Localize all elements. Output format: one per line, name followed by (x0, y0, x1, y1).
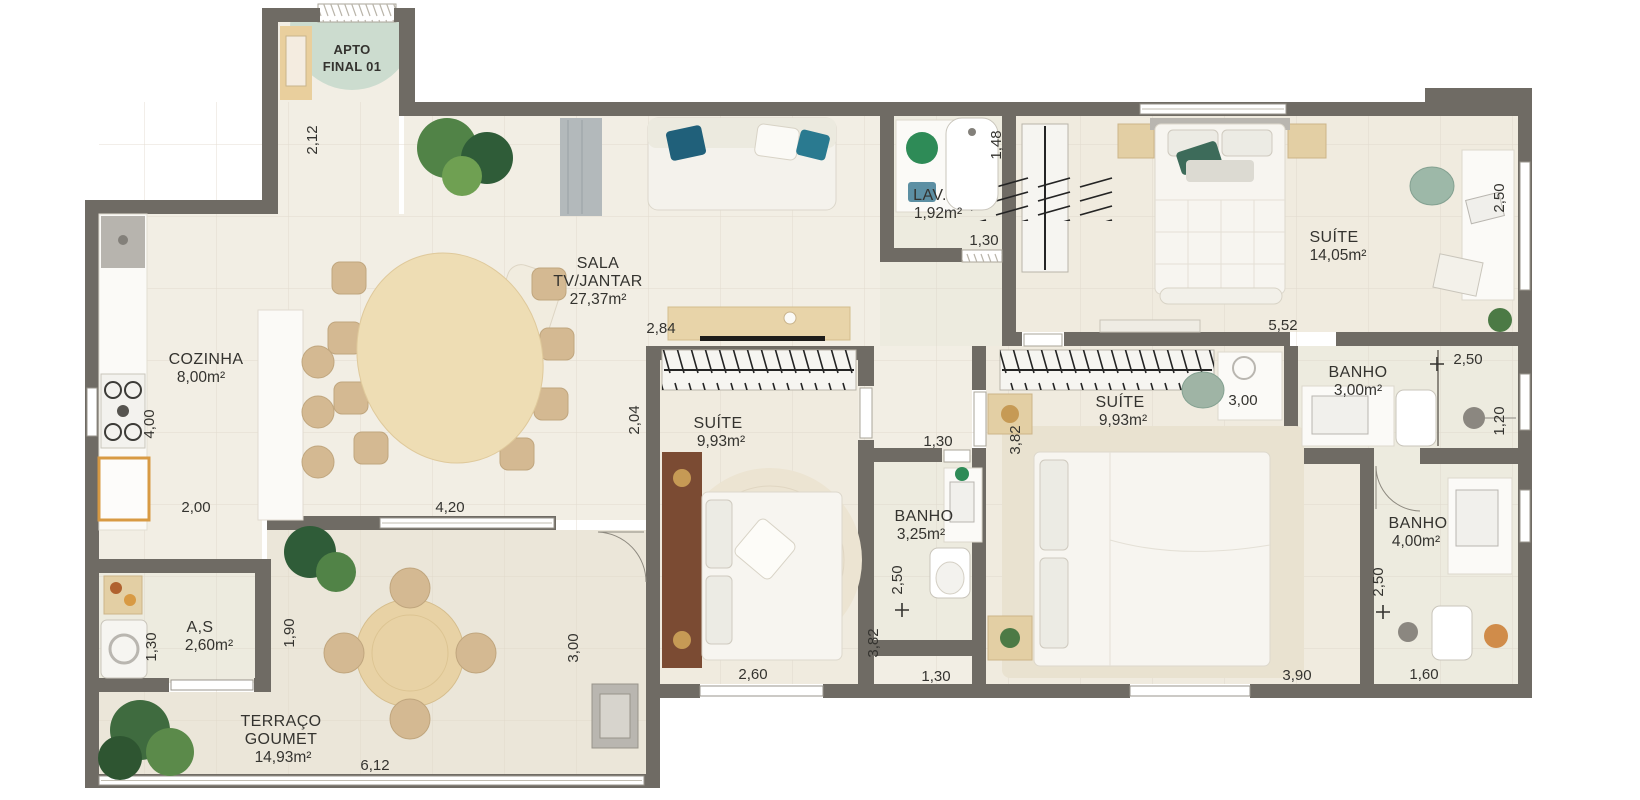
window-suite-master-right (1520, 162, 1530, 290)
suite2-lamp-top (673, 469, 691, 487)
sofa (648, 118, 836, 210)
b3-basin (1456, 490, 1498, 546)
suite3-chair (1182, 372, 1224, 408)
wall-lav-bottom (880, 248, 962, 262)
suite2-pillow-2 (706, 576, 732, 644)
window-as (171, 680, 253, 690)
stool-1 (302, 346, 334, 378)
wall-entry-right (399, 8, 415, 116)
label-as-area: 2,60m² (185, 637, 233, 654)
dim-banho-master-depth: 1,20 (1491, 406, 1508, 435)
suite3-pillow-2 (1040, 558, 1068, 648)
wall-left-outer (85, 200, 99, 788)
master-nightstand-left (1118, 124, 1154, 158)
dim-banho-corredor-bottom: 1,30 (921, 668, 950, 685)
washer (101, 620, 147, 678)
suite3-lamp (1001, 405, 1019, 423)
wall-suite-master-bottom (1064, 332, 1290, 346)
wall-suite2-right-upper (858, 346, 874, 386)
stool-2 (302, 396, 334, 428)
entry-mirror (286, 36, 306, 86)
dim-entry-depth: 2,12 (304, 125, 321, 154)
dim-sala-width: 4,20 (435, 499, 464, 516)
sofa-pillow-white (754, 123, 800, 161)
label-sala-area: 27,37m² (570, 291, 627, 308)
label-cozinha-area: 8,00m² (177, 369, 225, 386)
dim-banho-corredor-depth: 2,50 (889, 565, 906, 594)
bm-toilet (1396, 390, 1436, 446)
dim-suite3-depth: 3,82 (1007, 425, 1024, 454)
label-terraco-2: GOUMET (245, 731, 318, 748)
sideboard-body (668, 307, 850, 340)
label-suite2-area: 9,93m² (697, 433, 745, 450)
master-pillow-band (1186, 160, 1254, 182)
b3-drain (1398, 622, 1418, 642)
wall-entry-left (262, 8, 278, 214)
dim-banho-master-width: 2,50 (1453, 351, 1482, 368)
label-banho-master-area: 3,00m² (1334, 382, 1382, 399)
sala-plant-leaf3 (442, 156, 482, 196)
dim-lav-depth: 1,48 (988, 130, 1005, 159)
bc-basin (950, 482, 974, 522)
master-plant (1488, 308, 1512, 332)
tv-sideboard (668, 307, 850, 341)
label-cozinha: COZINHA (169, 351, 244, 368)
label-banho-corredor: BANHO (895, 508, 954, 525)
suite3-door-mat (974, 392, 986, 446)
terraco-chair-w (324, 633, 364, 673)
window-banho-master (1520, 374, 1530, 430)
suite3-desk (1218, 352, 1282, 420)
badge-line1: APTO (333, 42, 370, 57)
suite2-pillow-1 (706, 500, 732, 568)
wall-bottom-a (646, 684, 700, 698)
dining-chair-6 (540, 328, 574, 360)
as-fixtures (101, 576, 147, 678)
bc-plant (955, 467, 969, 481)
dim-suite3-desk: 3,00 (1228, 392, 1257, 409)
dining-chair-1 (332, 262, 366, 294)
label-suite3: SUÍTE (1095, 392, 1144, 411)
wall-suite3-left-upper (972, 346, 986, 390)
as-deco-2 (124, 594, 136, 606)
label-banho-suite3: BANHO (1389, 515, 1448, 532)
label-as: A,S (187, 619, 214, 636)
oven (99, 458, 149, 520)
terraco-grill-top (600, 694, 630, 738)
floorplan-page: APTO FINAL 01 (0, 0, 1640, 800)
as-shelf (104, 576, 142, 614)
door-plant-leaf2 (316, 552, 356, 592)
dining-chair-4 (354, 432, 388, 464)
dim-suite2-side: 3,82 (865, 628, 882, 657)
wall-terraco-right (646, 346, 660, 788)
wall-top-right-notch (1425, 88, 1532, 102)
suite3-bed (1034, 452, 1270, 666)
wall-as-bottom-left (85, 678, 169, 692)
label-sala-1: SALA (577, 255, 620, 272)
as-deco-1 (110, 582, 122, 594)
suite2-lamp-bottom (673, 631, 691, 649)
entry-door-mat-hatch (318, 4, 396, 22)
window-suite2 (700, 686, 823, 696)
label-lav: LAV. (913, 187, 947, 204)
wall-cozinha-top (85, 200, 278, 214)
palm-leaf2 (146, 728, 194, 776)
dim-banho-corredor-width: 1,30 (923, 433, 952, 450)
window-banho-suite3 (1520, 490, 1530, 542)
wall-bottom-c (1250, 684, 1532, 698)
label-suite2: SUÍTE (693, 413, 742, 432)
label-suite-master-area: 14,05m² (1310, 247, 1367, 264)
label-banho-corredor-area: 3,25m² (897, 526, 945, 543)
banho-corredor-door-mat (944, 450, 970, 462)
label-banho-suite3-area: 4,00m² (1392, 533, 1440, 550)
sideboard-vase (784, 312, 796, 324)
wall-bottom-b (823, 684, 1130, 698)
terraco-chair-s (390, 699, 430, 739)
dim-banho-suite3-width: 1,60 (1409, 666, 1438, 683)
stool-3 (302, 446, 334, 478)
master-desk-chair (1410, 167, 1454, 205)
label-terraco-1: TERRAÇO (240, 713, 321, 730)
palm-leaf3 (98, 736, 142, 780)
b3-flower (1484, 624, 1508, 648)
dim-suite3-width: 3,90 (1282, 667, 1311, 684)
dim-terraco-width: 6,12 (360, 757, 389, 774)
dim-suite2-width: 2,60 (738, 666, 767, 683)
wall-lav-left (880, 102, 894, 262)
label-suite3-area: 9,93m² (1099, 412, 1147, 429)
lav-green-bowl (906, 132, 938, 164)
dim-as-depth: 1,30 (143, 632, 160, 661)
dim-lav-width: 1,30 (969, 232, 998, 249)
kitchen-faucet (118, 235, 128, 245)
master-dresser (1100, 320, 1200, 332)
suite3-pillow-1 (1040, 460, 1068, 550)
dim-suite2-depth: 2,04 (626, 405, 643, 434)
window-cozinha (87, 388, 97, 436)
dim-terraco-depth: 3,00 (565, 633, 582, 662)
label-terraco-area: 14,93m² (255, 749, 312, 766)
wall-banho-row-right (1420, 448, 1532, 464)
wall-as-bottom-right (254, 678, 271, 692)
floorplan-svg: APTO FINAL 01 (0, 0, 1640, 800)
dim-banho-suite3-depth: 2,50 (1370, 567, 1387, 596)
terraco-chair-e (456, 633, 496, 673)
master-bench (1160, 288, 1282, 304)
bm-mirror (1312, 396, 1368, 434)
burner-center (117, 405, 129, 417)
suite-master-door-mat (1024, 334, 1062, 346)
label-sala-2: TV/JANTAR (553, 273, 643, 290)
curtain (560, 118, 602, 216)
terraco-chair-n (390, 568, 430, 608)
wall-as-top (85, 559, 269, 573)
label-lav-area: 1,92m² (914, 205, 962, 222)
wall-top-main (404, 102, 1532, 116)
wall-banho-corredor-top (874, 448, 942, 462)
suite3-plant (1000, 628, 1020, 648)
dim-as-side: 1,90 (281, 618, 298, 647)
b3-toilet (1432, 606, 1472, 660)
dim-suite-master-width: 5,52 (1268, 317, 1297, 334)
island-counter (258, 310, 303, 520)
label-banho-master: BANHO (1329, 364, 1388, 381)
tv-panel (700, 336, 825, 341)
wall-suite-master-bottom-east (1336, 332, 1532, 346)
wall-suite-master-bottom-stub (1016, 332, 1022, 346)
master-pillow-2 (1222, 130, 1272, 156)
lav-door-mat-hatch (962, 250, 1002, 262)
closet-suite3 (1000, 350, 1214, 390)
dim-cozinha-width: 2,00 (181, 499, 210, 516)
closet-suite2 (662, 350, 856, 390)
dim-suite-master-depth: 2,50 (1491, 183, 1508, 212)
suite2-door-mat (860, 388, 872, 438)
master-nightstand-right (1288, 124, 1326, 158)
dim-cozinha-depth: 4,00 (141, 409, 158, 438)
lav-fixtures (896, 118, 998, 212)
label-suite-master: SUÍTE (1309, 227, 1358, 246)
dim-sala-sideboard: 2,84 (646, 320, 675, 337)
bc-toilet-seat (936, 562, 964, 594)
window-suite3 (1130, 686, 1250, 696)
badge-line2: FINAL 01 (323, 59, 382, 74)
lav-faucet (968, 128, 976, 136)
wall-banho-corredor-bottom (874, 640, 972, 656)
wall-as-right (255, 559, 271, 692)
